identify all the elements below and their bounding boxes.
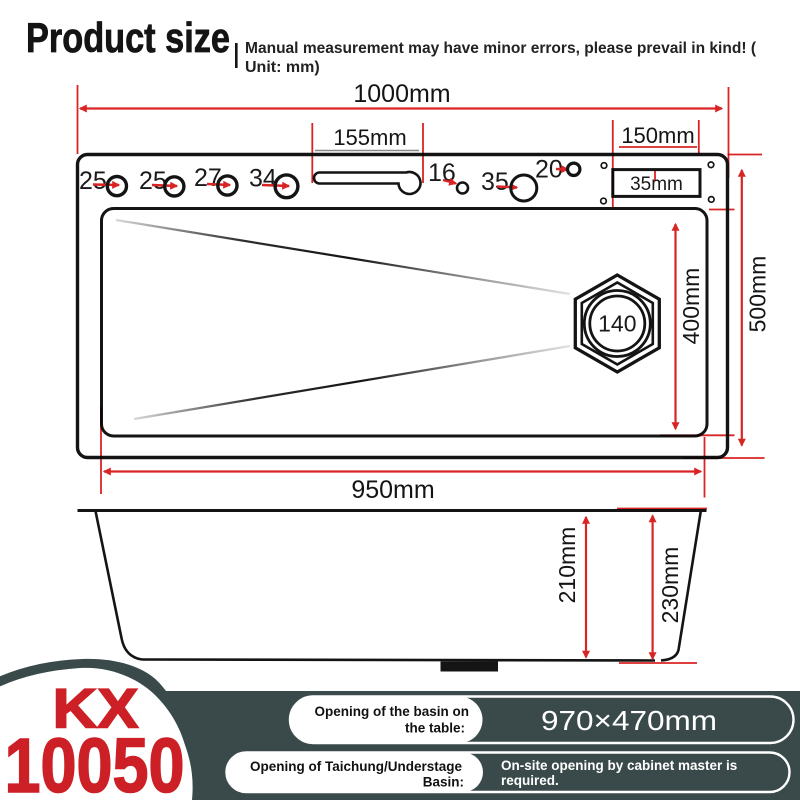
svg-text:35mm: 35mm bbox=[630, 174, 683, 195]
svg-text:210mm: 210mm bbox=[554, 527, 580, 604]
svg-text:25: 25 bbox=[79, 167, 107, 195]
svg-text:950mm: 950mm bbox=[351, 476, 434, 504]
svg-text:230mm: 230mm bbox=[657, 547, 683, 624]
svg-text:On-site opening by cabinet mas: On-site opening by cabinet master is bbox=[501, 758, 737, 773]
svg-text:150mm: 150mm bbox=[621, 123, 694, 148]
svg-text:1000mm: 1000mm bbox=[353, 80, 450, 108]
svg-text:Manual measurement may have mi: Manual measurement may have minor errors… bbox=[245, 40, 757, 57]
svg-text:Product size: Product size bbox=[26, 14, 230, 61]
svg-text:required.: required. bbox=[501, 773, 559, 788]
svg-text:140: 140 bbox=[598, 311, 636, 337]
svg-text:25: 25 bbox=[139, 167, 167, 195]
svg-text:500mm: 500mm bbox=[745, 256, 771, 333]
svg-text:Opening of the basin on: Opening of the basin on bbox=[315, 704, 470, 719]
svg-text:Basin:: Basin: bbox=[423, 775, 464, 790]
svg-text:Unit: mm): Unit: mm) bbox=[245, 59, 320, 76]
svg-text:10050: 10050 bbox=[5, 723, 185, 800]
svg-text:155mm: 155mm bbox=[333, 125, 406, 150]
svg-text:35: 35 bbox=[481, 168, 509, 196]
svg-text:Opening of Taichung/Understage: Opening of Taichung/Understage bbox=[250, 759, 462, 774]
svg-text:the table:: the table: bbox=[405, 721, 465, 736]
svg-text:970×470mm: 970×470mm bbox=[541, 705, 717, 736]
svg-text:34: 34 bbox=[249, 165, 277, 193]
svg-text:400mm: 400mm bbox=[678, 268, 704, 345]
